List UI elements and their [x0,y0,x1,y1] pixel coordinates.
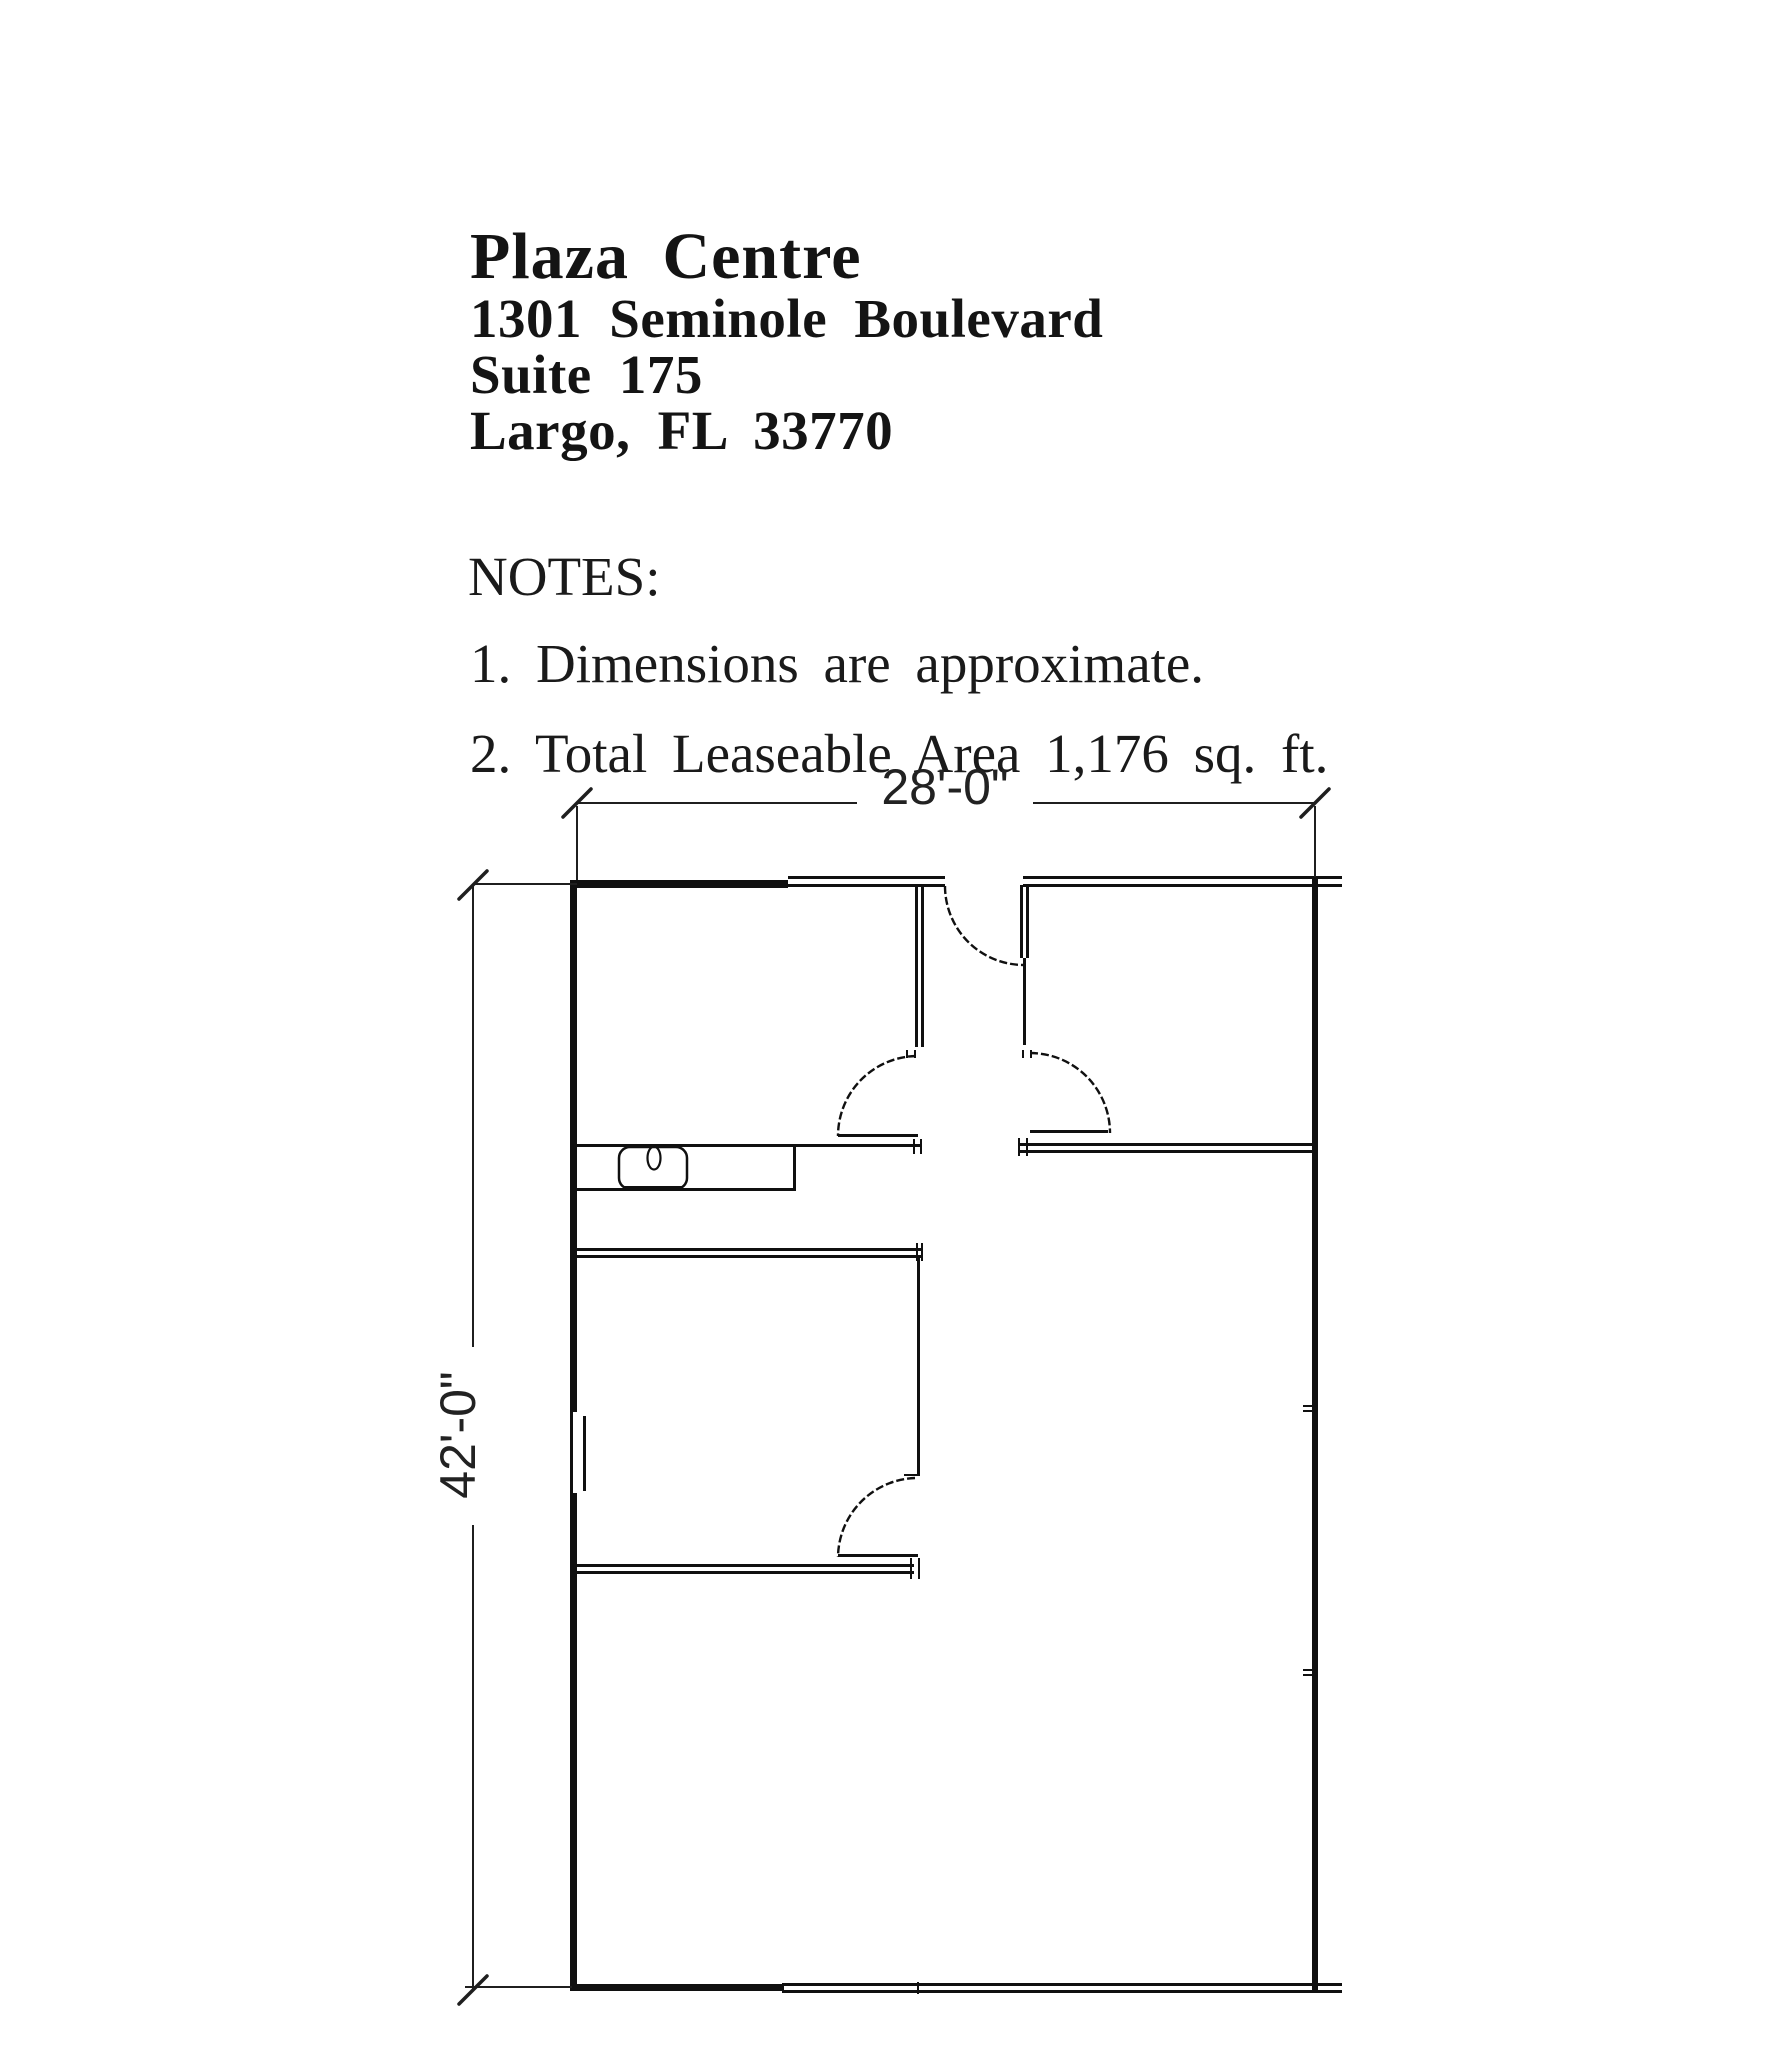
hall-right-jamb-tick-b [1026,1138,1028,1156]
width-dimension-label: 28'-0" [795,762,1095,812]
hall-right-jamb-tick-a [1018,1138,1020,1156]
right-wall [1312,877,1318,1990]
bottom-wall-outer [782,1990,1342,1993]
width-ext-line-right [1314,806,1316,877]
document-canvas: Plaza Centre 1301 Seminole Boulevard Sui… [0,0,1772,2048]
top-wall-inner-right [1023,884,1342,887]
right-wall-joint-tick-1b [1303,1410,1312,1412]
hall-left-jamb-tick-b [920,1139,922,1154]
bottom-wall-inner [782,1983,1342,1986]
entry-door-leaf-line-a [1020,885,1023,958]
left-door-leaf [838,1134,918,1137]
left-wall-upper [570,884,577,1412]
office-bottom-jamb-tick-a [910,1558,912,1579]
height-dim-line-lower [472,1525,474,1990]
entry-door-swing-arc [945,886,1024,965]
window-outer-line [570,1412,573,1493]
office-door-leaf [838,1554,918,1557]
right-wall-joint-tick-1a [1303,1405,1312,1407]
sink-basin [619,1147,687,1189]
office-door-top-jamb-tick [904,1474,917,1476]
entry-door-leaf-line-b [1026,885,1029,958]
vestibule-right-wall [1023,958,1026,1045]
faucet [648,1147,661,1170]
top-wall-outer-left [788,876,945,879]
office-top-jamb-tick-b [921,1243,923,1261]
vestibule-left-wall-line-a [915,884,918,1047]
height-ext-line-top [473,883,577,885]
office-bottom-wall-line-a [577,1564,914,1567]
office-bottom-wall-line-b [577,1571,914,1574]
height-dimension-label: 42'-0" [433,1285,485,1585]
office-top-wall-line-a [577,1248,922,1251]
right-door-swing-arc [1030,1053,1110,1133]
right-wall-joint-tick-2a [1303,1669,1312,1671]
vestibule-left-door-jamb-tick-a [906,1050,908,1058]
right-wall-joint-tick-2b [1303,1674,1312,1676]
height-dim-line-upper [472,885,474,1347]
left-door-swing-arc [838,1056,916,1136]
bottom-wall-joint-tick [917,1982,919,1994]
height-ext-line-bottom [465,1986,572,1988]
office-right-wall [917,1258,920,1476]
vestibule-left-wall-line-b [921,884,924,1047]
width-ext-line-left [576,806,578,880]
office-bottom-jamb-tick-b [918,1558,920,1579]
top-wall-outer-right [1023,876,1342,879]
window-inner-line [583,1416,586,1491]
hall-wall-right-line-b [1018,1150,1315,1153]
counter-right-edge [793,1147,796,1191]
top-wall-thick-segment [570,880,788,888]
left-wall-lower [570,1493,577,1988]
office-top-jamb-tick-a [916,1243,918,1261]
counter-bottom-edge [577,1188,796,1191]
bottom-wall-thick-segment [570,1984,784,1991]
right-door-leaf [1030,1130,1108,1133]
vestibule-right-door-jamb-tick-a [1022,1050,1024,1058]
office-door-swing-arc [838,1478,915,1557]
hall-wall-right-line-a [1018,1143,1315,1146]
floor-plan [0,0,1772,2048]
office-top-wall-line-b [577,1255,922,1258]
hall-left-jamb-tick-a [913,1139,915,1154]
